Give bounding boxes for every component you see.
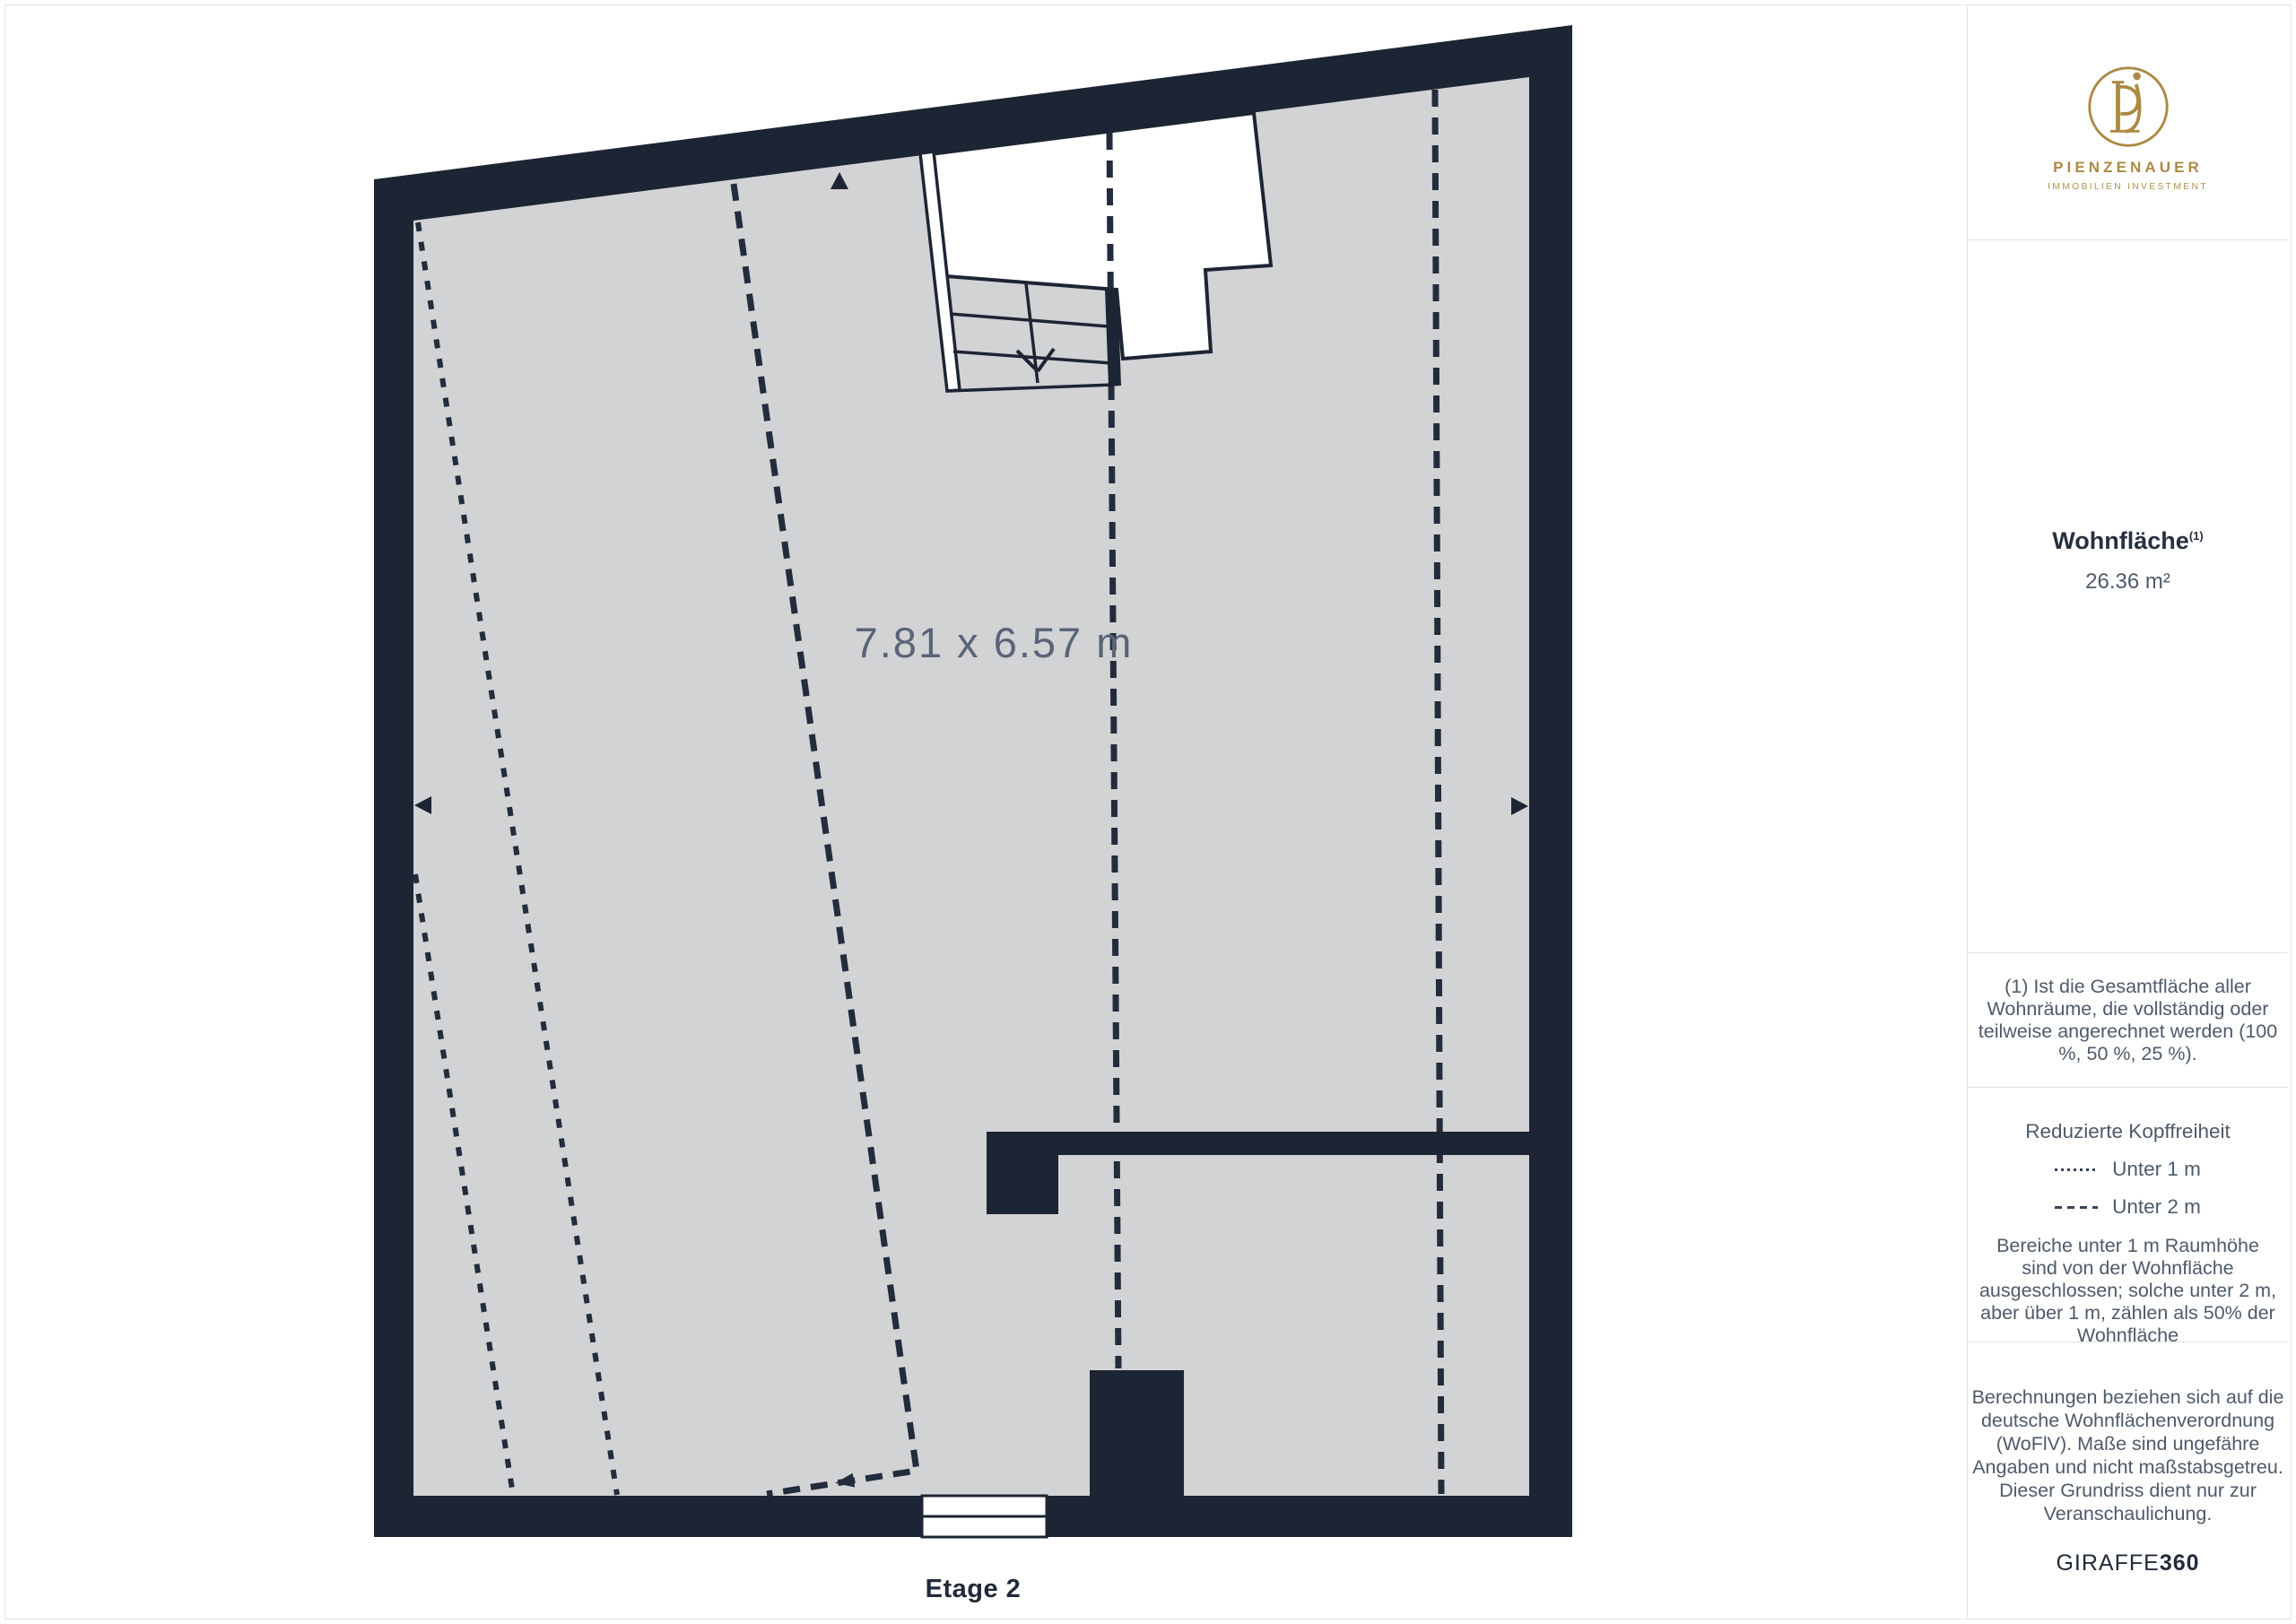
legend-label-under-2m: Unter 2 m: [2112, 1195, 2201, 1219]
legend-note: Bereiche unter 1 m Raumhöhe sind von der…: [1979, 1235, 2277, 1347]
footnote-text: (1) Ist die Gesamtfläche aller Wohnräume…: [1978, 976, 2279, 1065]
giraffe360-brand: GIRAFFE: [2056, 1550, 2159, 1576]
interior-wall-block: [987, 1132, 1058, 1214]
legend-title: Reduzierte Kopffreiheit: [1968, 1120, 2288, 1143]
legend-item-under-1m: Unter 1 m: [1968, 1158, 2288, 1181]
dotted-line-sample: [2055, 1168, 2098, 1171]
logo-section: PIENZENAUER IMMOBILIEN INVESTMENT: [1968, 4, 2288, 240]
living-area-title: Wohnfläche(1): [1968, 527, 2288, 555]
giraffe360-watermark: GIRAFFE360: [1968, 1550, 2288, 1576]
disclaimer-text: Berechnungen beziehen sich auf die deuts…: [1971, 1385, 2285, 1525]
brand-tagline: IMMOBILIEN INVESTMENT: [2048, 181, 2208, 192]
legend-section: Reduzierte Kopffreiheit Unter 1 m Unter …: [1968, 1088, 2288, 1342]
info-sidebar: PIENZENAUER IMMOBILIEN INVESTMENT Wohnfl…: [1967, 4, 2288, 1619]
brand-name: PIENZENAUER: [2053, 159, 2203, 177]
legend-item-under-2m: Unter 2 m: [1968, 1195, 2288, 1219]
living-area-footnote-marker: (1): [2189, 529, 2204, 543]
giraffe360-suffix: 360: [2160, 1550, 2200, 1576]
dashed-line-sample: [2055, 1206, 2098, 1209]
living-area-section: Wohnfläche(1) 26.36 m²: [1968, 240, 2288, 953]
interior-wall-horizontal: [987, 1132, 1529, 1155]
floorplan-page: 7.81 x 6.57 m Etage 2 PIENZENAUER IMMOBI…: [0, 0, 2296, 1624]
floor-area: [413, 77, 1529, 1496]
legend-label-under-1m: Unter 1 m: [2112, 1158, 2201, 1181]
floorplan-drawing: 7.81 x 6.57 m: [0, 0, 2296, 1624]
living-area-title-text: Wohnfläche: [2052, 527, 2189, 554]
interior-wall-stub: [1090, 1370, 1184, 1496]
footnote-section: (1) Ist die Gesamtfläche aller Wohnräume…: [1968, 953, 2288, 1088]
disclaimer-section: Berechnungen beziehen sich auf die deuts…: [1968, 1342, 2288, 1618]
floor-level-label: Etage 2: [374, 1575, 1572, 1604]
window-opening: [922, 1496, 1047, 1537]
living-area-value: 26.36 m²: [1968, 569, 2288, 595]
pienzenauer-logo-icon: [2085, 64, 2171, 150]
room-dimension-label: 7.81 x 6.57 m: [855, 619, 1134, 666]
